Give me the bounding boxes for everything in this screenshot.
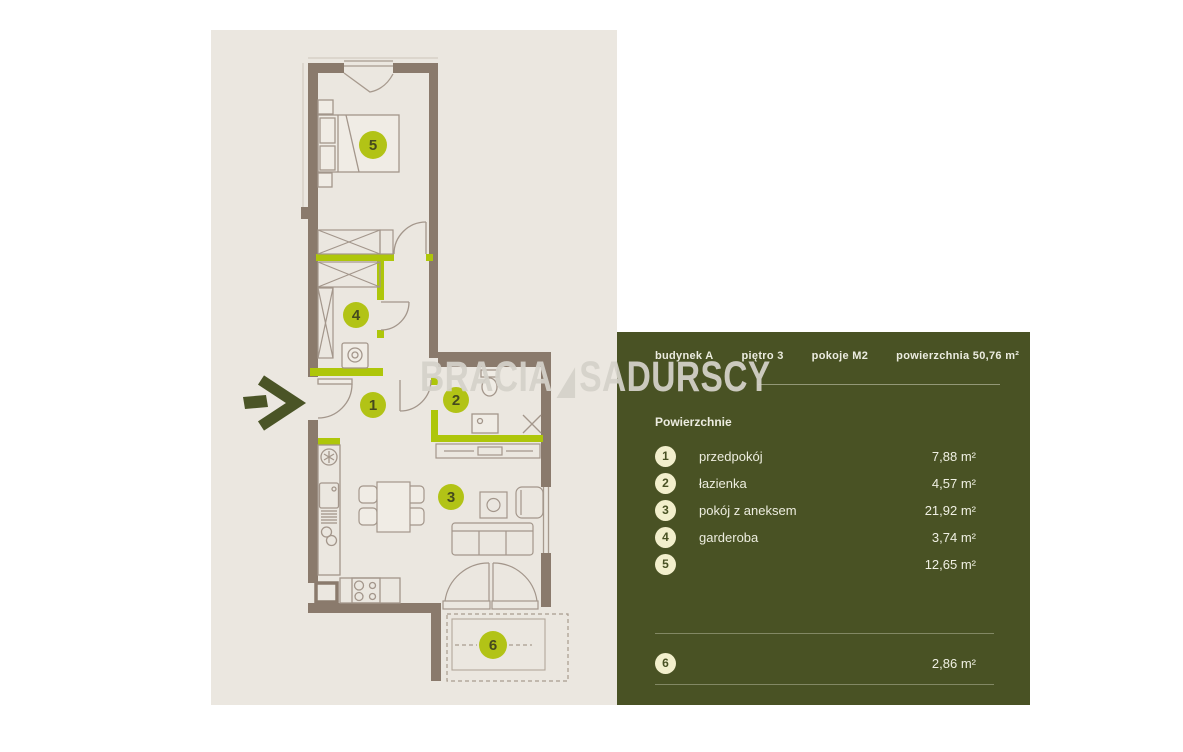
brand-name-left: BRACIA [420,356,553,399]
room-name: garderoba [699,530,758,545]
dining-set [359,482,424,532]
room-marker-6: 6 [479,631,507,659]
room-row-5: 5 12,65 m² [655,551,976,578]
room-marker-3: 3 [438,484,464,510]
room-row-3: 3 pokój z aneksem 21,92 m² [655,497,976,524]
room-area: 7,88 m² [932,449,976,464]
room-marker-5: 5 [359,131,387,159]
fact-area: powierzchnia 50,76 m² [896,350,1019,362]
room-area: 3,74 m² [932,530,976,545]
svg-text:5: 5 [369,137,377,154]
room-marker-4: 4 [343,302,369,328]
room-area: 21,92 m² [925,503,976,518]
washing-machine [342,343,368,368]
room-number-badge: 1 [655,446,676,467]
room-number-badge: 4 [655,527,676,548]
divider [655,633,994,634]
divider [655,684,994,685]
svg-text:3: 3 [447,489,455,506]
brand-logo: BRACIA SADURSCY [420,356,771,399]
room-row-1: 1 przedpokój 7,88 m² [655,443,976,470]
bedroom-window [344,61,393,92]
living-window [544,487,549,553]
room-area: 2,86 m² [932,656,976,671]
balcony [447,614,568,681]
room-number-badge: 6 [655,653,676,674]
flyer: 1 2 3 4 5 6 budynek A p [0,0,1183,752]
room-row-2: 2 łazienka 4,57 m² [655,470,976,497]
svg-text:4: 4 [352,307,361,324]
balcony-doors [443,563,538,609]
room-name: pokój z aneksem [699,503,797,518]
room-row-6: 6 2,86 m² [655,650,976,677]
room-marker-1: 1 [360,392,386,418]
logo-triangle-icon [557,367,576,398]
room-name: łazienka [699,476,747,491]
brand-name-right: SADURSCY [579,356,770,399]
room-number-badge: 3 [655,500,676,521]
room-name: przedpokój [699,449,763,464]
room-number-badge: 5 [655,554,676,575]
room-number-badge: 2 [655,473,676,494]
room-area: 12,65 m² [925,557,976,572]
svg-text:1: 1 [369,397,377,414]
wall-shaft [316,583,337,602]
areas-section-title: Powierzchnie [655,415,732,429]
entrance-arrow-icon [243,380,296,426]
fact-rooms: pokoje M2 [812,350,869,362]
divider [758,384,1000,385]
room-row-4: 4 garderoba 3,74 m² [655,524,976,551]
room-area: 4,57 m² [932,476,976,491]
svg-text:6: 6 [489,637,497,654]
